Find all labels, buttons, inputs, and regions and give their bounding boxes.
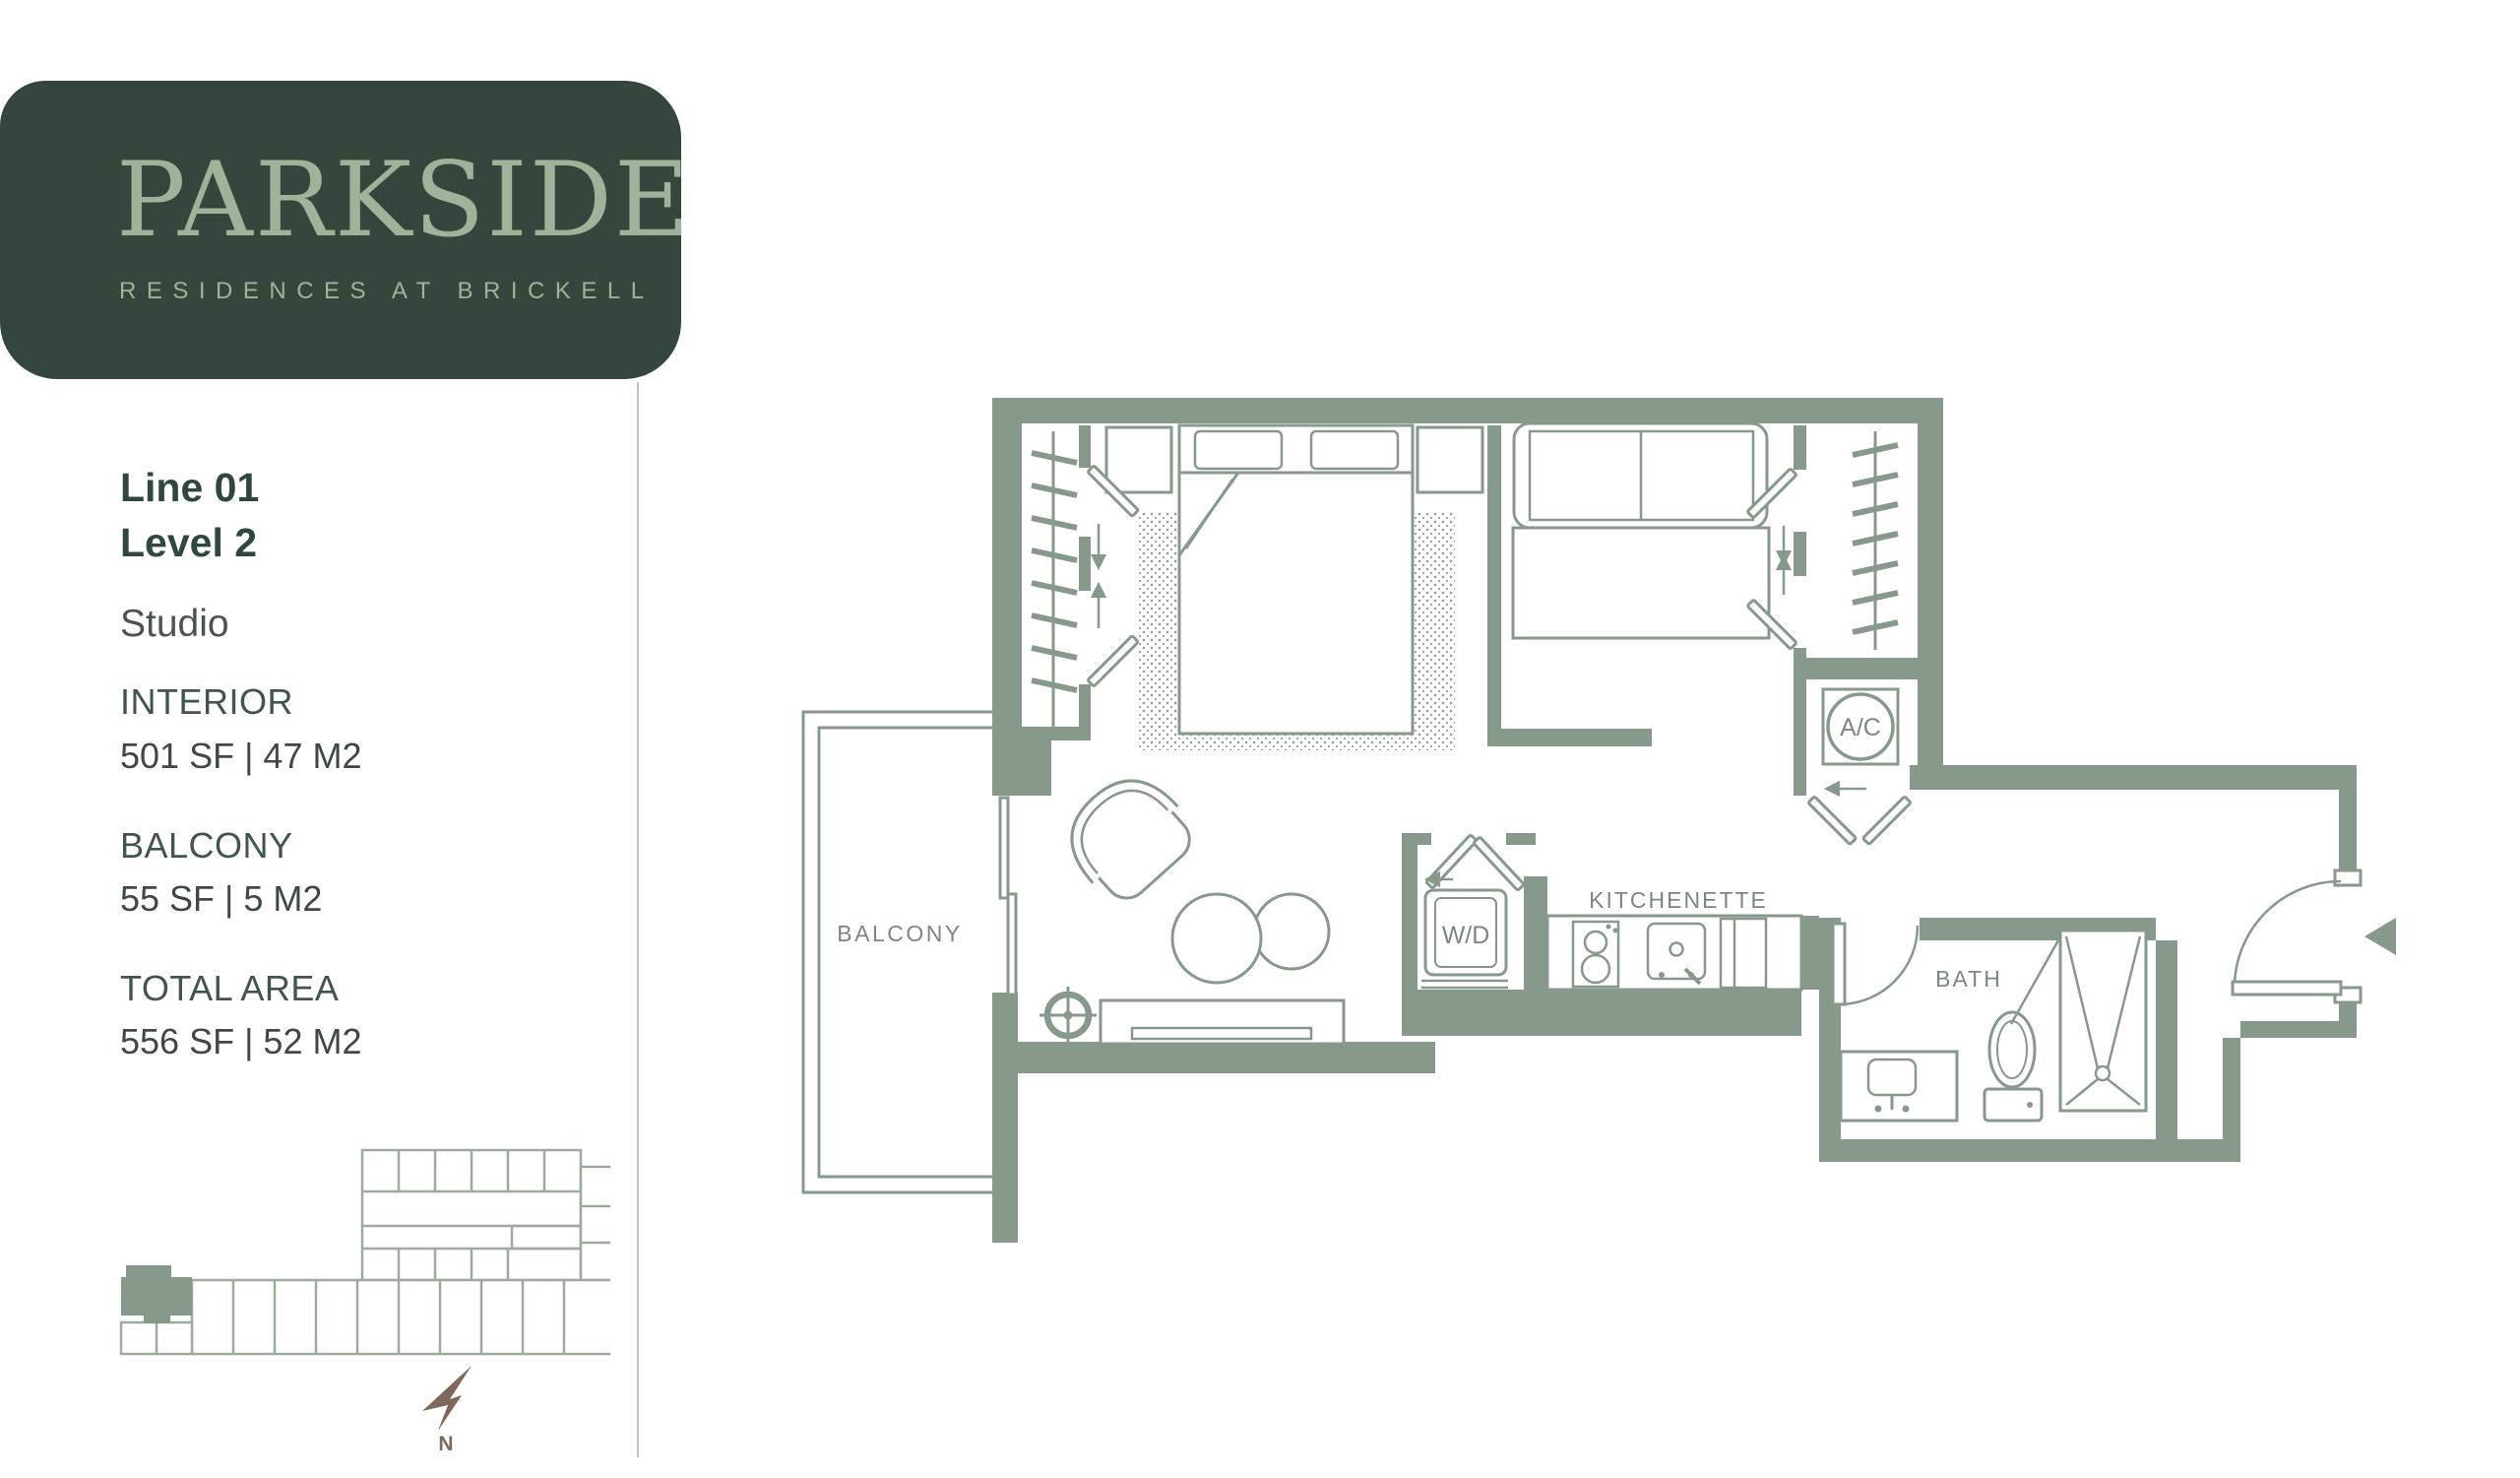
north-label: N (438, 1433, 453, 1455)
area-value-balcony: 55 SF | 5 M2 (120, 878, 322, 920)
kitchen-cabinet (1721, 919, 1766, 988)
toilet-tank (1984, 1089, 2042, 1121)
vertical-divider (637, 382, 639, 1457)
unit-line: Line 01 (120, 465, 259, 511)
bed (1179, 473, 1413, 734)
nightstand (1106, 427, 1171, 492)
door-jamb (2335, 870, 2361, 885)
wd-closet: W/D (1421, 835, 1524, 988)
nightstand (1417, 427, 1482, 492)
wd-label: W/D (1442, 922, 1490, 949)
unit-level: Level 2 (120, 520, 257, 566)
key-plan-building (121, 1150, 610, 1354)
bedroom (1106, 425, 1482, 750)
closet-door-leaf (1088, 636, 1139, 687)
unit-type: Studio (120, 603, 229, 646)
area-value-interior: 501 SF | 47 M2 (120, 736, 361, 777)
entry (2233, 870, 2396, 1002)
ac-closet: A/C (1808, 689, 1911, 845)
kitchenette-label: KITCHENETTE (1589, 887, 1768, 913)
area-label-interior: INTERIOR (120, 681, 293, 723)
shower-door (2011, 940, 2058, 1024)
brand-tagline: RESIDENCES AT BRICKELL (119, 278, 655, 305)
ac-label: A/C (1840, 714, 1881, 741)
area-label-balcony: BALCONY (120, 825, 293, 867)
sofa-bed (1513, 528, 1769, 638)
area-label-total: TOTAL AREA (120, 968, 339, 1009)
kitchen-sink (1648, 924, 1705, 979)
ac-door-leaf (1862, 797, 1911, 845)
ac-door-leaf (1808, 797, 1857, 845)
area-value-total: 556 SF | 52 M2 (120, 1021, 361, 1062)
ceiling-fan-icon (1039, 987, 1097, 1044)
entry-door-leaf (2233, 982, 2341, 995)
balcony-label: BALCONY (837, 921, 962, 946)
entry-arrow-icon (2364, 918, 2396, 955)
bath-door-leaf (1833, 924, 1845, 1004)
vanity (1841, 1052, 1957, 1121)
brand-panel: PARKSIDE RESIDENCES AT BRICKELL (0, 81, 681, 379)
pillow (1195, 431, 1282, 469)
living-room (1039, 760, 1344, 1044)
sofa-nook (1513, 423, 1769, 638)
wd-door-leaf (1474, 837, 1525, 890)
tv (1132, 1028, 1311, 1039)
shower (2060, 931, 2146, 1111)
side-table (1254, 894, 1329, 969)
north-arrow-icon: N (418, 1364, 487, 1457)
entry-door-swing (2235, 881, 2341, 988)
bath-label: BATH (1935, 966, 2002, 992)
bath: BATH (1833, 924, 2146, 1121)
kitchenette: KITCHENETTE (1547, 887, 1801, 990)
pillow (1311, 431, 1398, 469)
balcony-slider-panel (1008, 894, 1016, 995)
armchair (1050, 760, 1204, 913)
shower-drain (2096, 1066, 2110, 1080)
key-plan-unit-highlight (121, 1265, 192, 1323)
key-plan (98, 1123, 610, 1462)
bath-door-swing (1839, 926, 1918, 1004)
side-table (1172, 894, 1261, 983)
balcony: BALCONY (803, 712, 1016, 1192)
brand-logo: PARKSIDE (116, 146, 648, 254)
balcony-slider-panel (1000, 798, 1008, 898)
floor-plan: BALCONY (768, 374, 2441, 1260)
